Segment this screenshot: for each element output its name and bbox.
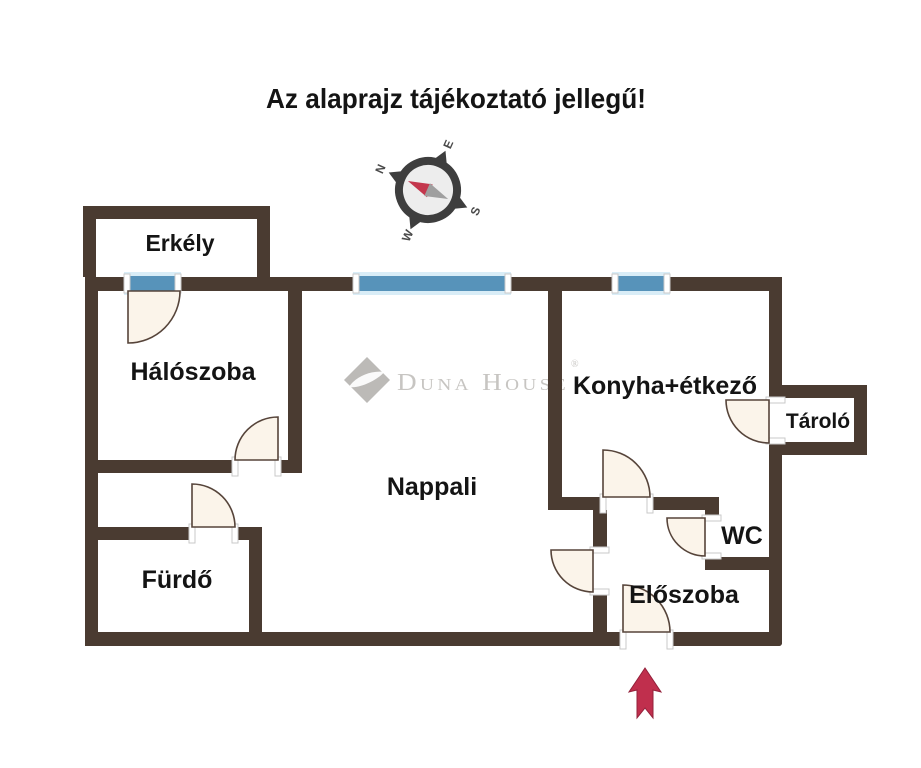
room-label-storage: Tároló (786, 410, 850, 433)
room-label-bath: Fürdő (142, 566, 213, 594)
wall-balcony-top (83, 206, 270, 219)
compass-icon: N E S W (351, 117, 503, 265)
hall-door-swing (551, 550, 593, 592)
wall-top-4 (667, 277, 782, 291)
wall-left (85, 277, 98, 646)
wall-balcony-left (83, 206, 96, 277)
balcony-door-swing (128, 291, 180, 343)
wall-kitchen-left (548, 277, 562, 510)
wall-storage-top (769, 385, 867, 398)
wc-door-swing (667, 518, 705, 556)
wall-hall-left-2 (593, 592, 607, 646)
wall-bedroom-bottom-1 (98, 460, 235, 473)
wall-hall-left-1 (593, 510, 607, 550)
storage-door-swing (726, 400, 769, 443)
wall-bedroom-bottom-2 (278, 460, 302, 473)
room-label-living: Nappali (387, 473, 477, 501)
wall-balcony-right (257, 206, 270, 277)
balcony-door-window (127, 276, 178, 291)
floorplan-canvas: Duna House ® (0, 0, 921, 768)
disclaimer-title: Az alaprajz tájékoztató jellegű! (266, 83, 646, 114)
wall-kitchen-bottom-1 (548, 497, 603, 510)
kitchen-window (615, 276, 667, 291)
compass-n: N (372, 162, 388, 176)
wall-right-2 (769, 441, 782, 646)
wall-bath-top-1 (98, 527, 192, 540)
registered-mark: ® (571, 359, 579, 370)
duna-house-watermark: Duna House ® (344, 357, 579, 403)
wall-bottom-2 (670, 632, 782, 646)
room-label-balcony: Erkély (145, 230, 214, 256)
room-label-hall: Előszoba (629, 581, 740, 609)
room-label-wc: WC (721, 522, 763, 550)
room-label-kitchen: Konyha+étkező (573, 372, 757, 400)
wall-kitchen-bottom-2 (650, 497, 719, 510)
room-label-bedroom: Hálószoba (130, 358, 256, 386)
kitchen-door-swing (603, 450, 650, 497)
bathroom-door-swing (192, 484, 235, 527)
duna-house-wordmark: Duna House (397, 370, 569, 396)
wall-bath-right (249, 527, 262, 646)
living-room-window (356, 276, 508, 291)
wall-right-1 (769, 277, 782, 400)
compass-s: S (467, 205, 483, 218)
wall-bottom-1 (85, 632, 623, 646)
entrance-arrow-icon (629, 668, 661, 718)
compass-w: W (399, 227, 417, 244)
wall-top-2 (178, 277, 356, 291)
bedroom-door-swing (235, 417, 278, 460)
floorplan-drawing: Duna House ® (0, 0, 921, 768)
wall-bedroom-right (288, 290, 302, 473)
compass-e: E (440, 138, 456, 151)
